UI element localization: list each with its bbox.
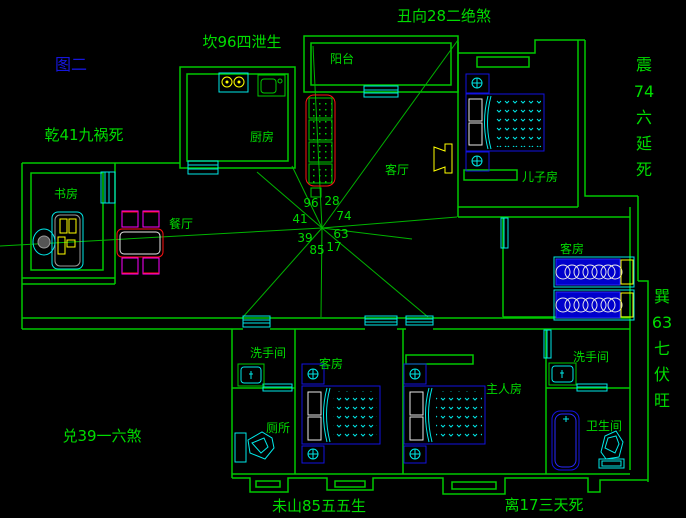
- vertical-char: 伏: [654, 365, 670, 384]
- fengshui-vertical-right-lower: 巽 63 七 伏 旺: [652, 287, 672, 410]
- fengshui-label-top-right: 丑向28二绝煞: [397, 7, 491, 25]
- dining-table: [117, 229, 163, 257]
- sanitary-fixtures: [235, 363, 624, 470]
- figure-title: 图二: [55, 55, 87, 74]
- master-wardrobe: [406, 355, 473, 364]
- blanket-fold: [426, 388, 433, 442]
- pillow: [469, 123, 482, 145]
- compass-number-sw: 85: [309, 243, 324, 257]
- guest-bottom-bed: [302, 364, 380, 463]
- pillow: [308, 392, 321, 415]
- washroom-right-side-door: [544, 330, 551, 358]
- pillow: [621, 293, 633, 317]
- computer-tower: [69, 219, 76, 233]
- bay-window-1: [256, 481, 280, 487]
- vertical-char: 七: [654, 339, 670, 358]
- fengshui-label-bottom-left: 未山85五五生: [272, 497, 366, 515]
- pillow: [410, 417, 423, 440]
- compass-number-nw: 96: [303, 196, 318, 210]
- son-wardrobe: [477, 57, 529, 67]
- dining-table-top: [120, 232, 160, 254]
- room-label-living: 客厅: [385, 162, 409, 177]
- pillow: [308, 417, 321, 440]
- floorplan-drawing: 坎96四泄生 丑向28二绝煞 乾41九祸死 兑39一六煞 未山85五五生 离17…: [0, 0, 686, 518]
- vertical-char: 延: [636, 134, 652, 153]
- room-label-guest-bottom: 客房: [319, 356, 343, 371]
- fengshui-label-left-upper: 乾41九祸死: [44, 126, 123, 144]
- dining-chair-backs: [122, 212, 159, 273]
- master-bed: [404, 364, 485, 463]
- compass-number-ese: 63: [333, 227, 348, 241]
- sofa-cushions: [309, 98, 332, 183]
- fengshui-vertical-right-upper: 震 74 六 延 死: [634, 55, 654, 179]
- compass-number-w: 41: [292, 212, 307, 226]
- room-label-balcony: 阳台: [330, 51, 354, 66]
- ray-south: [321, 228, 322, 317]
- computer-monitor: [60, 219, 67, 233]
- dining-furniture: [117, 211, 163, 274]
- cad-floorplan-canvas: 坎96四泄生 丑向28二绝煞 乾41九祸死 兑39一六煞 未山85五五生 离17…: [0, 0, 686, 518]
- stove-knob: [226, 81, 229, 84]
- sink-basin: [261, 79, 276, 93]
- pillow: [410, 392, 423, 415]
- bay-window-2: [335, 481, 365, 487]
- vertical-char: 六: [636, 108, 652, 127]
- bottom-outer-wall: [232, 478, 648, 494]
- bathtub: [552, 411, 579, 470]
- mattress-pattern: [436, 391, 482, 440]
- room-label-kitchen: 厨房: [250, 129, 274, 144]
- vertical-char: 74: [634, 82, 654, 101]
- balcony-outer-wall: [304, 36, 458, 92]
- blanket-fold: [324, 388, 331, 442]
- washroom-left-door: [263, 384, 292, 391]
- fengshui-label-left-lower: 兑39一六煞: [62, 427, 141, 445]
- sink-tap: [278, 79, 282, 83]
- mattress-pattern: [494, 98, 541, 147]
- vertical-char: 63: [652, 313, 672, 332]
- sink-tap: [560, 370, 564, 378]
- bathtub-tap: [563, 416, 569, 422]
- stove-knob: [238, 81, 241, 84]
- fengshui-compass-rays: [0, 40, 458, 317]
- fengshui-label-bottom-right: 离17三天死: [504, 496, 583, 514]
- bay-window-3: [452, 482, 496, 489]
- study-furniture: [33, 212, 83, 269]
- kitchen-furniture: [219, 73, 285, 96]
- kitchen-outer-wall: [180, 67, 295, 168]
- pillow: [469, 99, 482, 121]
- vertical-char: 死: [636, 160, 652, 179]
- mouse: [67, 240, 75, 247]
- room-label-washroom-left: 洗手间: [250, 346, 286, 360]
- sink-tap: [249, 371, 253, 379]
- room-label-son: 儿子房: [522, 169, 558, 184]
- guestroom-door: [501, 218, 508, 248]
- compass-number-e: 74: [336, 209, 351, 223]
- guestroom-beds: [554, 257, 634, 320]
- pillow: [621, 260, 633, 284]
- room-label-washroom-right: 洗手间: [573, 350, 609, 364]
- room-label-guest-right: 客房: [560, 241, 584, 256]
- toilet: [235, 432, 274, 462]
- tv: [434, 144, 452, 173]
- dining-chairs: [122, 211, 159, 274]
- ray-ne: [322, 40, 458, 228]
- son-bed: [466, 74, 544, 171]
- vertical-char: 旺: [654, 391, 670, 410]
- toilet: [599, 431, 624, 468]
- room-label-dining: 餐厅: [169, 216, 193, 231]
- mattress-pattern: [333, 391, 377, 440]
- washroom-right-door: [577, 384, 607, 391]
- blanket-fold: [485, 96, 492, 149]
- room-label-bathroom: 卫生间: [586, 419, 622, 433]
- keyboard: [58, 237, 65, 254]
- room-label-master: 主人房: [486, 381, 522, 396]
- vertical-char: 震: [636, 55, 652, 74]
- vertical-char: 巽: [654, 287, 670, 306]
- compass-number-n: 28: [324, 194, 339, 208]
- room-label-study: 书房: [54, 186, 78, 201]
- room-label-toilet: 厕所: [266, 421, 290, 435]
- bottom-rooms-walls: [232, 329, 630, 478]
- compass-number-s: 17: [326, 240, 341, 254]
- desk-chair-seat: [38, 236, 50, 248]
- fengshui-label-top: 坎96四泄生: [202, 33, 281, 51]
- living-furniture: [306, 95, 452, 197]
